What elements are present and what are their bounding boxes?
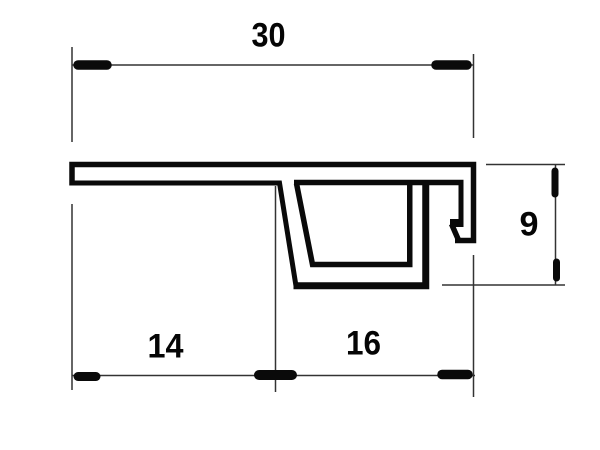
svg-text:16: 16 [346,325,381,363]
svg-text:9: 9 [520,206,539,244]
svg-text:14: 14 [148,328,184,366]
svg-text:30: 30 [252,17,286,55]
